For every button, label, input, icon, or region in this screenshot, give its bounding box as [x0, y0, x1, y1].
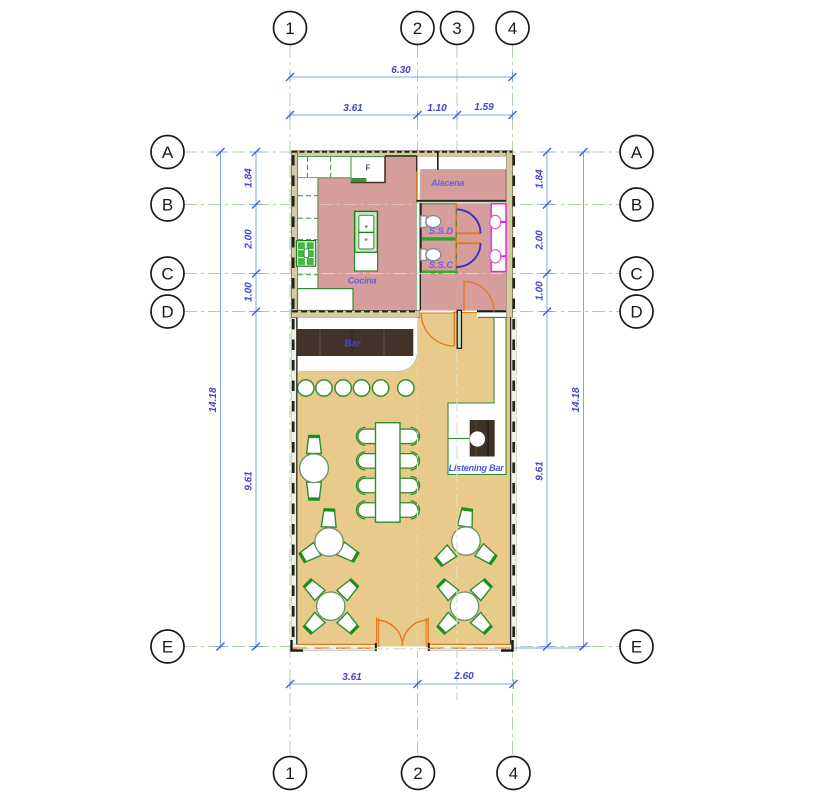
- svg-text:1.00: 1.00: [535, 281, 546, 301]
- svg-text:C: C: [161, 265, 173, 284]
- svg-text:14.18: 14.18: [571, 387, 582, 412]
- svg-text:2: 2: [413, 19, 422, 38]
- svg-text:D: D: [161, 303, 173, 322]
- svg-text:A: A: [162, 143, 174, 162]
- svg-text:A: A: [631, 143, 643, 162]
- svg-text:Cocina: Cocina: [348, 276, 377, 286]
- svg-text:Bar: Bar: [344, 339, 362, 350]
- svg-text:2: 2: [413, 764, 422, 783]
- svg-text:9.61: 9.61: [535, 461, 546, 481]
- svg-text:F: F: [366, 164, 371, 173]
- svg-text:1.84: 1.84: [244, 168, 255, 188]
- svg-text:1.10: 1.10: [427, 103, 447, 114]
- svg-text:2.00: 2.00: [244, 229, 255, 250]
- svg-text:B: B: [631, 196, 642, 215]
- svg-text:6.30: 6.30: [391, 65, 411, 76]
- svg-text:1.00: 1.00: [244, 282, 255, 302]
- svg-text:9.61: 9.61: [244, 471, 255, 491]
- svg-text:1.84: 1.84: [535, 169, 546, 189]
- svg-text:4: 4: [508, 19, 517, 38]
- svg-text:D: D: [630, 303, 642, 322]
- svg-text:3.61: 3.61: [342, 672, 362, 683]
- svg-text:14.18: 14.18: [208, 387, 219, 412]
- svg-text:3: 3: [452, 19, 461, 38]
- svg-text:S.S.D: S.S.D: [429, 226, 454, 236]
- svg-text:E: E: [162, 638, 173, 657]
- svg-text:2.00: 2.00: [535, 230, 546, 251]
- svg-text:E: E: [631, 638, 642, 657]
- svg-text:3.61: 3.61: [343, 103, 363, 114]
- svg-text:B: B: [162, 196, 173, 215]
- svg-text:C: C: [630, 265, 642, 284]
- svg-text:1.59: 1.59: [474, 102, 494, 113]
- svg-text:2.60: 2.60: [453, 671, 474, 682]
- svg-text:1: 1: [285, 19, 294, 38]
- svg-text:Alacena: Alacena: [430, 178, 464, 188]
- svg-text:4: 4: [509, 764, 518, 783]
- svg-text:1: 1: [285, 764, 294, 783]
- svg-text:S.S.C: S.S.C: [429, 260, 454, 270]
